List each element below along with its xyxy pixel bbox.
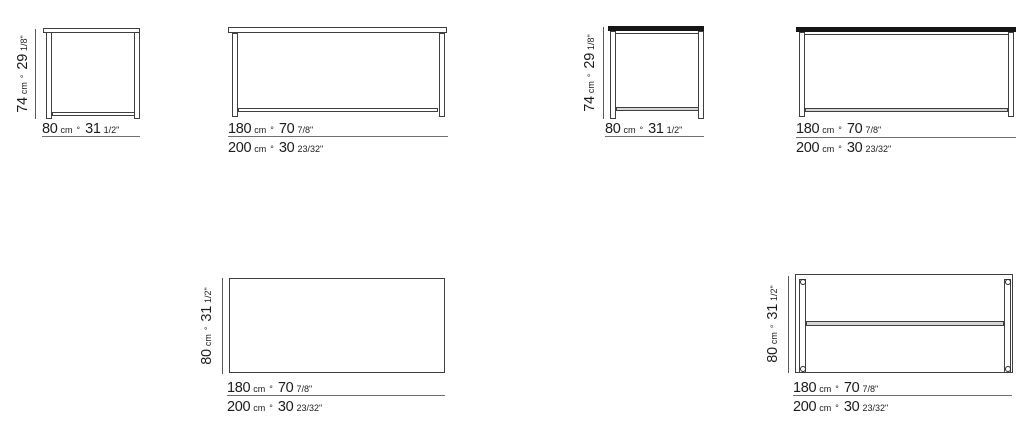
tabletop [796, 27, 1016, 32]
tabletop [228, 27, 447, 33]
dimension-label-width-200: 200cm°3023/32" [227, 400, 322, 414]
leg-frame-rail-right [1004, 279, 1011, 373]
leg-foot-circle [1005, 366, 1011, 372]
dimension-label-width-200: 200cm°3023/32" [796, 141, 891, 155]
dimension-rule [228, 136, 448, 137]
dimension-label-width: 80cm°311/2" [605, 122, 682, 136]
dimension-line-vertical [35, 29, 36, 119]
dimension-line-vertical [603, 27, 604, 119]
dimension-label-width-200: 200cm°3023/32" [228, 141, 323, 155]
dimension-rule [227, 395, 445, 396]
dimension-rule [605, 136, 704, 137]
dimension-line-vertical [788, 276, 789, 373]
table-leg-right [439, 33, 446, 117]
leg-foot-circle [800, 366, 806, 372]
center-stretcher [806, 321, 1004, 326]
table-leg-left [46, 32, 52, 119]
table-leg-left [232, 33, 239, 117]
dimension-line-vertical [222, 278, 223, 374]
figure-front-elevation-model1: 180cm°707/8" 200cm°3023/32" [226, 20, 456, 160]
technical-drawing-canvas: 74cm°291/8" 80cm°311/2" 180cm°707/8" 200… [0, 0, 1032, 426]
leg-frame-rail-left [799, 279, 806, 373]
apron-rail [616, 33, 699, 34]
dimension-label-width: 80cm°311/2" [42, 122, 119, 136]
dimension-label-height: 74cm°291/8" [583, 13, 597, 133]
table-leg-left [799, 32, 805, 117]
stretcher [238, 108, 438, 112]
tabletop [608, 26, 704, 31]
dimension-label-width-180: 180cm°707/8" [228, 122, 313, 136]
tabletop-outline [229, 278, 445, 373]
dimension-label-depth: 80cm°311/2" [200, 266, 214, 386]
stretcher [52, 112, 135, 116]
table-leg-right [698, 31, 704, 119]
dimension-label-width-180: 180cm°707/8" [227, 381, 312, 395]
figure-side-elevation-model2: 74cm°291/8" 80cm°311/2" [580, 20, 720, 160]
figure-plan-view-model2: 80cm°311/2" 180cm°707/8" 200cm°3023/32" [760, 272, 1030, 417]
dimension-rule [42, 136, 140, 137]
dimension-rule [796, 137, 1016, 138]
leg-foot-circle [800, 279, 806, 285]
table-leg-right [1008, 32, 1014, 117]
apron-rail [805, 34, 1008, 35]
dimension-label-width-200: 200cm°3023/32" [793, 400, 888, 414]
figure-front-elevation-model2: 180cm°707/8" 200cm°3023/32" [794, 20, 1024, 160]
figure-side-elevation-model1: 74cm°291/8" 80cm°311/2" [14, 20, 164, 150]
dimension-label-height: 74cm°291/8" [16, 14, 30, 134]
dimension-label-depth: 80cm°311/2" [766, 264, 780, 384]
tabletop [43, 28, 140, 33]
figure-plan-view-model1: 80cm°311/2" 180cm°707/8" 200cm°3023/32" [200, 272, 460, 417]
stretcher [805, 108, 1008, 112]
table-leg-left [610, 31, 616, 119]
dimension-rule [793, 395, 1012, 396]
table-leg-right [134, 32, 140, 119]
stretcher [616, 107, 699, 111]
dimension-label-width-180: 180cm°707/8" [793, 381, 878, 395]
leg-foot-circle [1005, 279, 1011, 285]
dimension-label-width-180: 180cm°707/8" [796, 122, 881, 136]
